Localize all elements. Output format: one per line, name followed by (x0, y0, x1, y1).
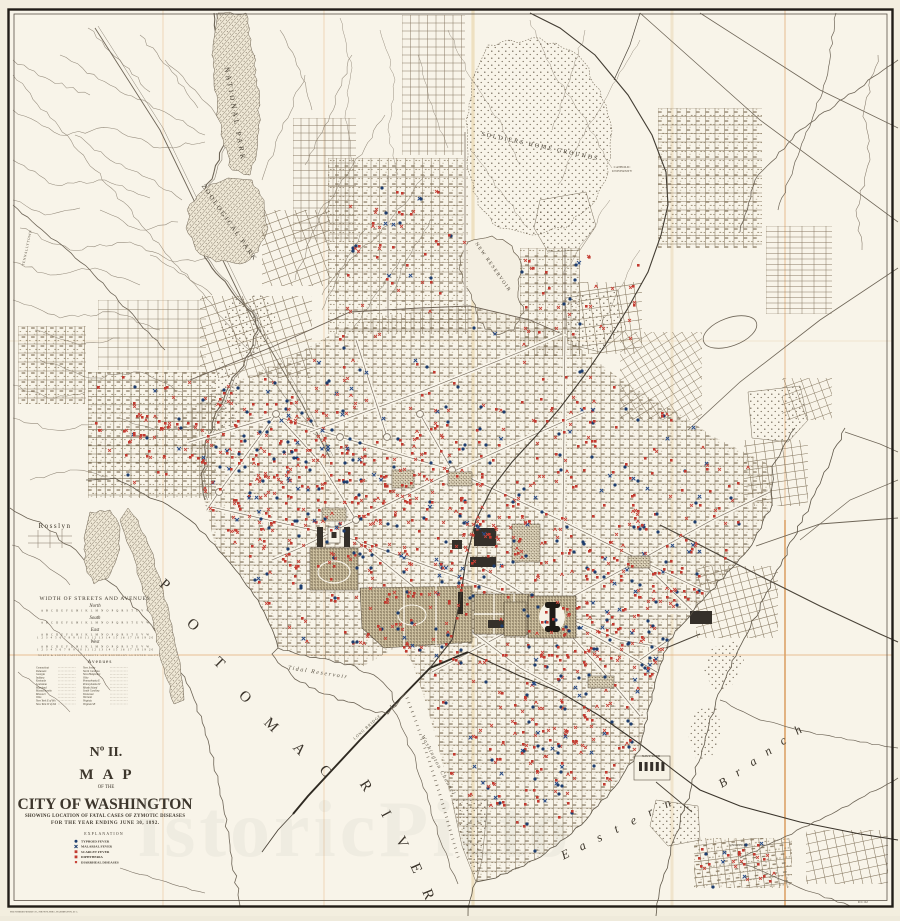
svg-text:Virginia SE: Virginia SE (83, 703, 96, 706)
svg-text:DIARRHEAL DISEASES: DIARRHEAL DISEASES (81, 860, 119, 864)
svg-text:North: North (88, 604, 101, 609)
svg-text:Avenues: Avenues (88, 659, 113, 665)
svg-text:OF THE: OF THE (98, 785, 115, 790)
svg-text:UNIONTOWN: UNIONTOWN (729, 843, 751, 847)
svg-text:DIPHTHERIA: DIPHTHERIA (81, 855, 103, 859)
svg-text:New York W of 6th: New York W of 6th (35, 703, 57, 706)
svg-text:WIDTH OF STREETS AND AVENUES: WIDTH OF STREETS AND AVENUES (40, 596, 151, 602)
svg-text:1 2 3 4 5 6 7 8 9 10 11 12 13: 1 2 3 4 5 6 7 8 9 10 11 12 13 14 15 16 1… (37, 649, 154, 652)
svg-text:SCARLET FEVER: SCARLET FEVER (81, 850, 110, 854)
svg-text:TYPHOID FEVER: TYPHOID FEVER (81, 840, 110, 844)
svg-text:THE NORRIS PETERS CO., PHOTO-L: THE NORRIS PETERS CO., PHOTO-LITHO., WAS… (10, 911, 78, 914)
svg-text:D C 62: D C 62 (858, 900, 868, 904)
svg-text:MALARIAL FEVER: MALARIAL FEVER (81, 845, 113, 849)
svg-text:South: South (90, 616, 102, 621)
svg-text:West: West (91, 640, 101, 645)
svg-text:NORTH & SOUTH CAPITOL STREETS: NORTH & SOUTH CAPITOL STREETS AND BOUNDA… (38, 654, 159, 657)
svg-text:Nº II.: Nº II. (90, 745, 123, 760)
svg-text:Rosslyn: Rosslyn (38, 522, 71, 530)
svg-text:istoricPicto: istoricPicto (138, 786, 572, 874)
svg-text:East: East (90, 628, 100, 633)
svg-text:UNIVERSITY: UNIVERSITY (612, 169, 633, 173)
svg-text:EXPLANATION: EXPLANATION (84, 832, 124, 836)
svg-text:MAP: MAP (79, 767, 140, 783)
